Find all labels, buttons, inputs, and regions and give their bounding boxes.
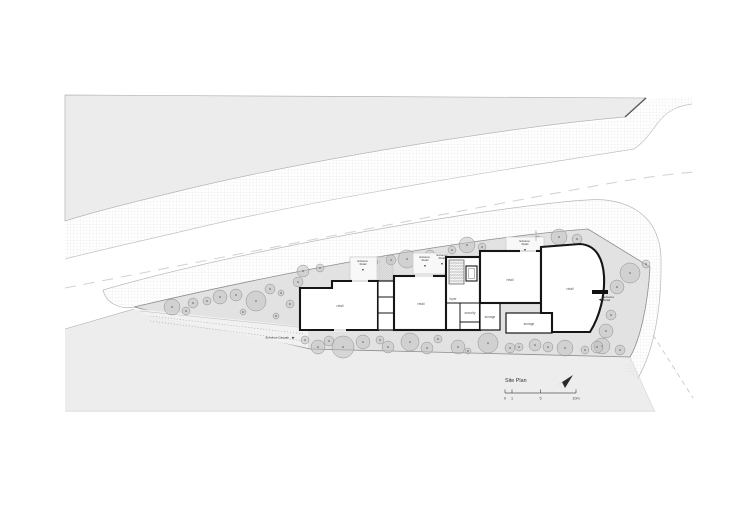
tree-center-dot [426, 347, 428, 349]
tree-center-dot [619, 349, 621, 351]
tree-center-dot [304, 339, 306, 341]
tree-center-dot [297, 281, 299, 283]
room-label-foyer: foyer [449, 297, 457, 301]
scale-tick-1: 1 [511, 397, 513, 401]
tree-center-dot [387, 346, 389, 348]
down-arrow-icon: ▼ [523, 248, 526, 252]
ramp-hatch [379, 257, 393, 280]
room-label-storage-a: storage [485, 315, 496, 319]
room-label-storage-b: storage [524, 322, 535, 326]
scale-tick-10m: 10m [572, 397, 579, 401]
tree-center-dot [302, 270, 304, 272]
tree-center-dot [342, 346, 344, 348]
tree-center-dot [289, 303, 291, 305]
tree-center-dot [576, 238, 578, 240]
drawing-title: Site Plan [505, 378, 527, 384]
tree-center-dot [269, 288, 271, 290]
tree-center-dot [437, 338, 439, 340]
tree-center-dot [206, 300, 208, 302]
tree-center-dot [616, 286, 618, 288]
tree-center-dot [451, 249, 453, 251]
tree-center-dot [645, 263, 647, 265]
scale-tick-5: 5 [539, 397, 541, 401]
elevator [466, 266, 477, 281]
tree-center-dot [596, 346, 598, 348]
down-arrow-icon: ▼ [440, 262, 443, 266]
tree-center-dot [379, 339, 381, 341]
tree-center-dot [509, 347, 511, 349]
tree-center-dot [558, 236, 560, 238]
tree-center-dot [242, 311, 244, 313]
room-label-retail-a: retail [337, 304, 344, 308]
down-arrow-icon: ▼ [423, 264, 426, 268]
room-label-security: security [465, 311, 476, 315]
tree-center-dot [362, 341, 364, 343]
tree-center-dot [605, 330, 607, 332]
section-marker [592, 290, 608, 294]
room-label-retail-c: retail [507, 278, 514, 282]
tree-center-dot [481, 246, 483, 248]
tree-center-dot [255, 300, 257, 302]
tree-center-dot [610, 314, 612, 316]
site-plan-drawing: retail retail retail retail foyer securi… [0, 0, 750, 530]
tree-center-dot [487, 342, 489, 344]
tree-center-dot [275, 315, 277, 317]
tree-center-dot [547, 346, 549, 348]
tree-center-dot [564, 347, 566, 349]
tree-center-dot [534, 344, 536, 346]
tree-center-dot [584, 349, 586, 351]
tree-center-dot [457, 346, 459, 348]
tree-center-dot [317, 346, 319, 348]
service-strip [378, 281, 394, 330]
tree-center-dot [629, 272, 631, 274]
grid-marker-label: 1 [535, 230, 537, 234]
tree-center-dot [328, 340, 330, 342]
site-plan-canvas: retail retail retail retail foyer securi… [0, 0, 750, 530]
scale-tick-0: 0 [504, 397, 506, 401]
entrance-carpark-label: Entrance Carpark [265, 336, 289, 340]
tree-center-dot [235, 294, 237, 296]
tree-center-dot [409, 341, 411, 343]
room-retail-c [480, 251, 541, 303]
tree-center-dot [171, 306, 173, 308]
tree-center-dot [466, 244, 468, 246]
tree-center-dot [185, 310, 187, 312]
tree-center-dot [518, 346, 520, 348]
tree-center-dot [467, 350, 469, 352]
tree-center-dot [406, 258, 408, 260]
tree-center-dot [219, 296, 221, 298]
tree-center-dot [192, 302, 194, 304]
room-label-retail-d: retail [567, 287, 574, 291]
tree-center-dot [280, 292, 282, 294]
tree-center-dot [319, 267, 321, 269]
room-label-retail-b: retail [418, 302, 425, 306]
down-arrow-icon: ▼ [361, 268, 364, 272]
stair [449, 260, 464, 284]
